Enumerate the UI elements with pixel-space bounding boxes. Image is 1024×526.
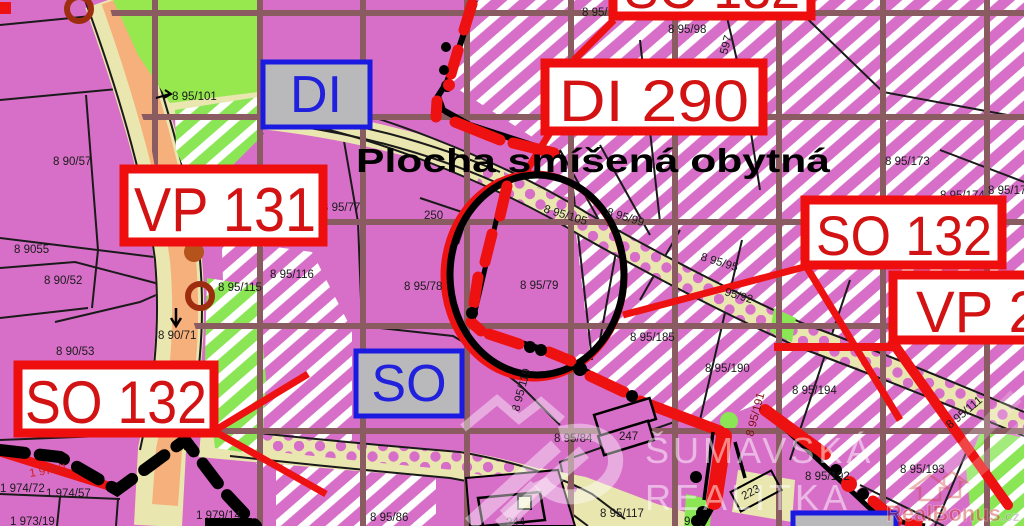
svg-text:Plocha smíšená obytná: Plocha smíšená obytná <box>356 142 831 179</box>
svg-text:8 95/101: 8 95/101 <box>172 91 217 103</box>
svg-text:8 95/190: 8 95/190 <box>705 363 750 375</box>
svg-text:1 974/72: 1 974/72 <box>0 483 45 495</box>
svg-text:8 95/79: 8 95/79 <box>520 280 558 292</box>
svg-text:VP 131: VP 131 <box>134 176 316 245</box>
svg-text:SO: SO <box>371 355 446 413</box>
svg-text:RealBonus.cz: RealBonus.cz <box>886 501 1020 526</box>
svg-text:8 95/86: 8 95/86 <box>370 512 408 524</box>
svg-text:SO 132: SO 132 <box>25 369 207 436</box>
svg-text:1 973/19: 1 973/19 <box>10 516 55 526</box>
svg-text:8 95/77: 8 95/77 <box>322 202 360 214</box>
svg-text:8 95/173: 8 95/173 <box>885 156 930 168</box>
svg-text:DI: DI <box>290 66 342 124</box>
svg-text:8 95/193: 8 95/193 <box>900 464 945 476</box>
svg-text:8 9055: 8 9055 <box>14 244 49 256</box>
svg-text:8 90/71: 8 90/71 <box>158 330 196 342</box>
svg-text:8 95/194: 8 95/194 <box>792 385 837 397</box>
svg-text:8 95/78: 8 95/78 <box>404 281 442 293</box>
svg-text:8 90/53: 8 90/53 <box>56 346 94 358</box>
svg-text:ŠUMAVSKÁ: ŠUMAVSKÁ <box>645 430 874 471</box>
svg-text:REALITKA: REALITKA <box>645 477 851 518</box>
svg-text:8 95/185: 8 95/185 <box>630 332 675 344</box>
svg-text:8 90/57: 8 90/57 <box>53 156 91 168</box>
svg-text:DI 290: DI 290 <box>559 69 749 134</box>
svg-text:8 95/115: 8 95/115 <box>218 282 262 294</box>
svg-text:SO 132: SO 132 <box>624 0 800 20</box>
svg-text:8 90/52: 8 90/52 <box>44 275 82 287</box>
svg-text:8 95/17: 8 95/17 <box>988 185 1024 197</box>
svg-text:8 95/116: 8 95/116 <box>270 269 314 281</box>
svg-text:1 974/57: 1 974/57 <box>46 488 91 500</box>
svg-text:247: 247 <box>619 431 638 443</box>
svg-text:VP 2: VP 2 <box>916 280 1024 345</box>
svg-text:250: 250 <box>424 210 443 222</box>
svg-text:SO 132: SO 132 <box>816 204 992 267</box>
svg-text:1 979/14: 1 979/14 <box>196 510 241 522</box>
svg-text:8 95/117: 8 95/117 <box>600 508 644 520</box>
svg-text:8 95/98: 8 95/98 <box>668 24 706 36</box>
